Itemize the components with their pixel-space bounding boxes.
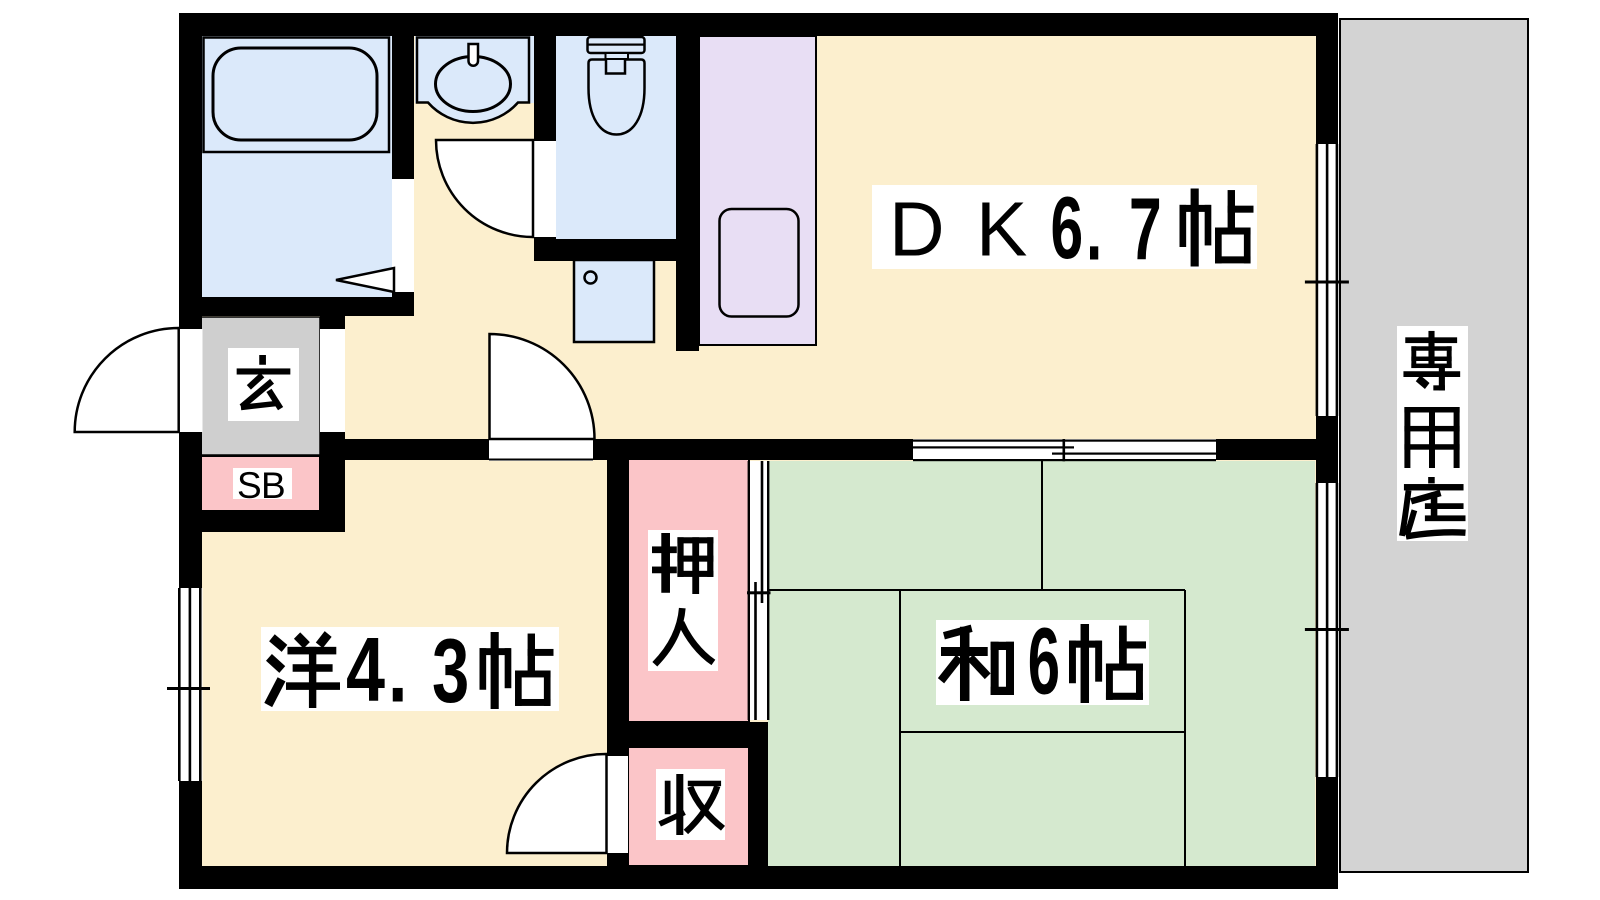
svg-text:.: . (1086, 179, 1102, 278)
svg-text:6: 6 (1028, 608, 1060, 714)
svg-text:7: 7 (1129, 179, 1162, 278)
svg-text:K: K (976, 187, 1027, 273)
svg-text:6: 6 (1051, 178, 1084, 277)
svg-text:4: 4 (346, 621, 385, 722)
svg-text:D: D (889, 187, 945, 273)
svg-text:.: . (388, 621, 407, 722)
svg-text:B: B (261, 465, 286, 506)
svg-text:S: S (237, 465, 262, 506)
svg-text:3: 3 (432, 620, 469, 721)
